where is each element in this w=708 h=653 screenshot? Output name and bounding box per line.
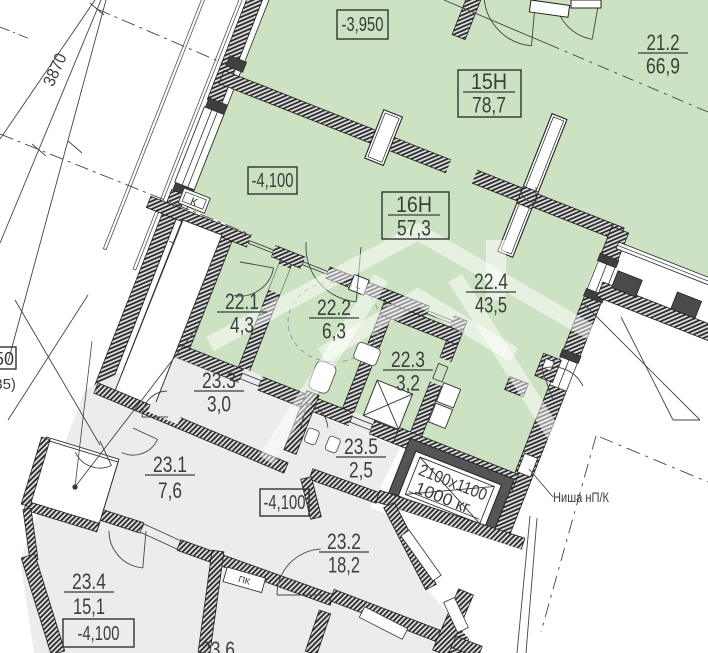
svg-text:Ниша нП/К: Ниша нП/К xyxy=(553,489,610,505)
svg-text:23.4: 23.4 xyxy=(72,569,106,594)
svg-text:22.4: 22.4 xyxy=(474,269,508,294)
svg-text:50: 50 xyxy=(0,349,14,369)
svg-text:-4,100: -4,100 xyxy=(78,623,120,645)
svg-text:,35): ,35) xyxy=(0,376,16,393)
svg-text:22.1: 22.1 xyxy=(225,289,259,314)
svg-text:16Н: 16Н xyxy=(396,192,432,217)
svg-text:15,1: 15,1 xyxy=(73,594,105,619)
svg-text:4,3: 4,3 xyxy=(230,313,254,338)
svg-text:57,3: 57,3 xyxy=(397,216,431,241)
svg-text:43,5: 43,5 xyxy=(475,293,507,318)
svg-text:2,5: 2,5 xyxy=(349,458,373,483)
svg-text:22.3: 22.3 xyxy=(391,347,425,372)
svg-text:7,6: 7,6 xyxy=(158,478,182,503)
svg-text:3,0: 3,0 xyxy=(207,392,231,417)
svg-text:23.3: 23.3 xyxy=(202,368,236,393)
svg-text:18,2: 18,2 xyxy=(328,553,360,578)
svg-text:15Н: 15Н xyxy=(471,69,507,94)
svg-text:23.2: 23.2 xyxy=(327,529,361,554)
svg-text:21.2: 21.2 xyxy=(647,30,680,55)
svg-text:23.5: 23.5 xyxy=(344,434,378,459)
svg-text:78,7: 78,7 xyxy=(472,93,506,118)
svg-text:22.2: 22.2 xyxy=(317,295,351,320)
svg-text:-3,950: -3,950 xyxy=(342,14,384,36)
svg-text:-4,100: -4,100 xyxy=(252,170,294,192)
svg-text:23.1: 23.1 xyxy=(153,452,187,477)
svg-text:66,9: 66,9 xyxy=(646,54,680,79)
svg-text:6,3: 6,3 xyxy=(322,319,346,344)
svg-text:-4,100: -4,100 xyxy=(264,492,306,514)
svg-text:23.6: 23.6 xyxy=(201,637,235,653)
svg-text:3,2: 3,2 xyxy=(396,371,420,396)
